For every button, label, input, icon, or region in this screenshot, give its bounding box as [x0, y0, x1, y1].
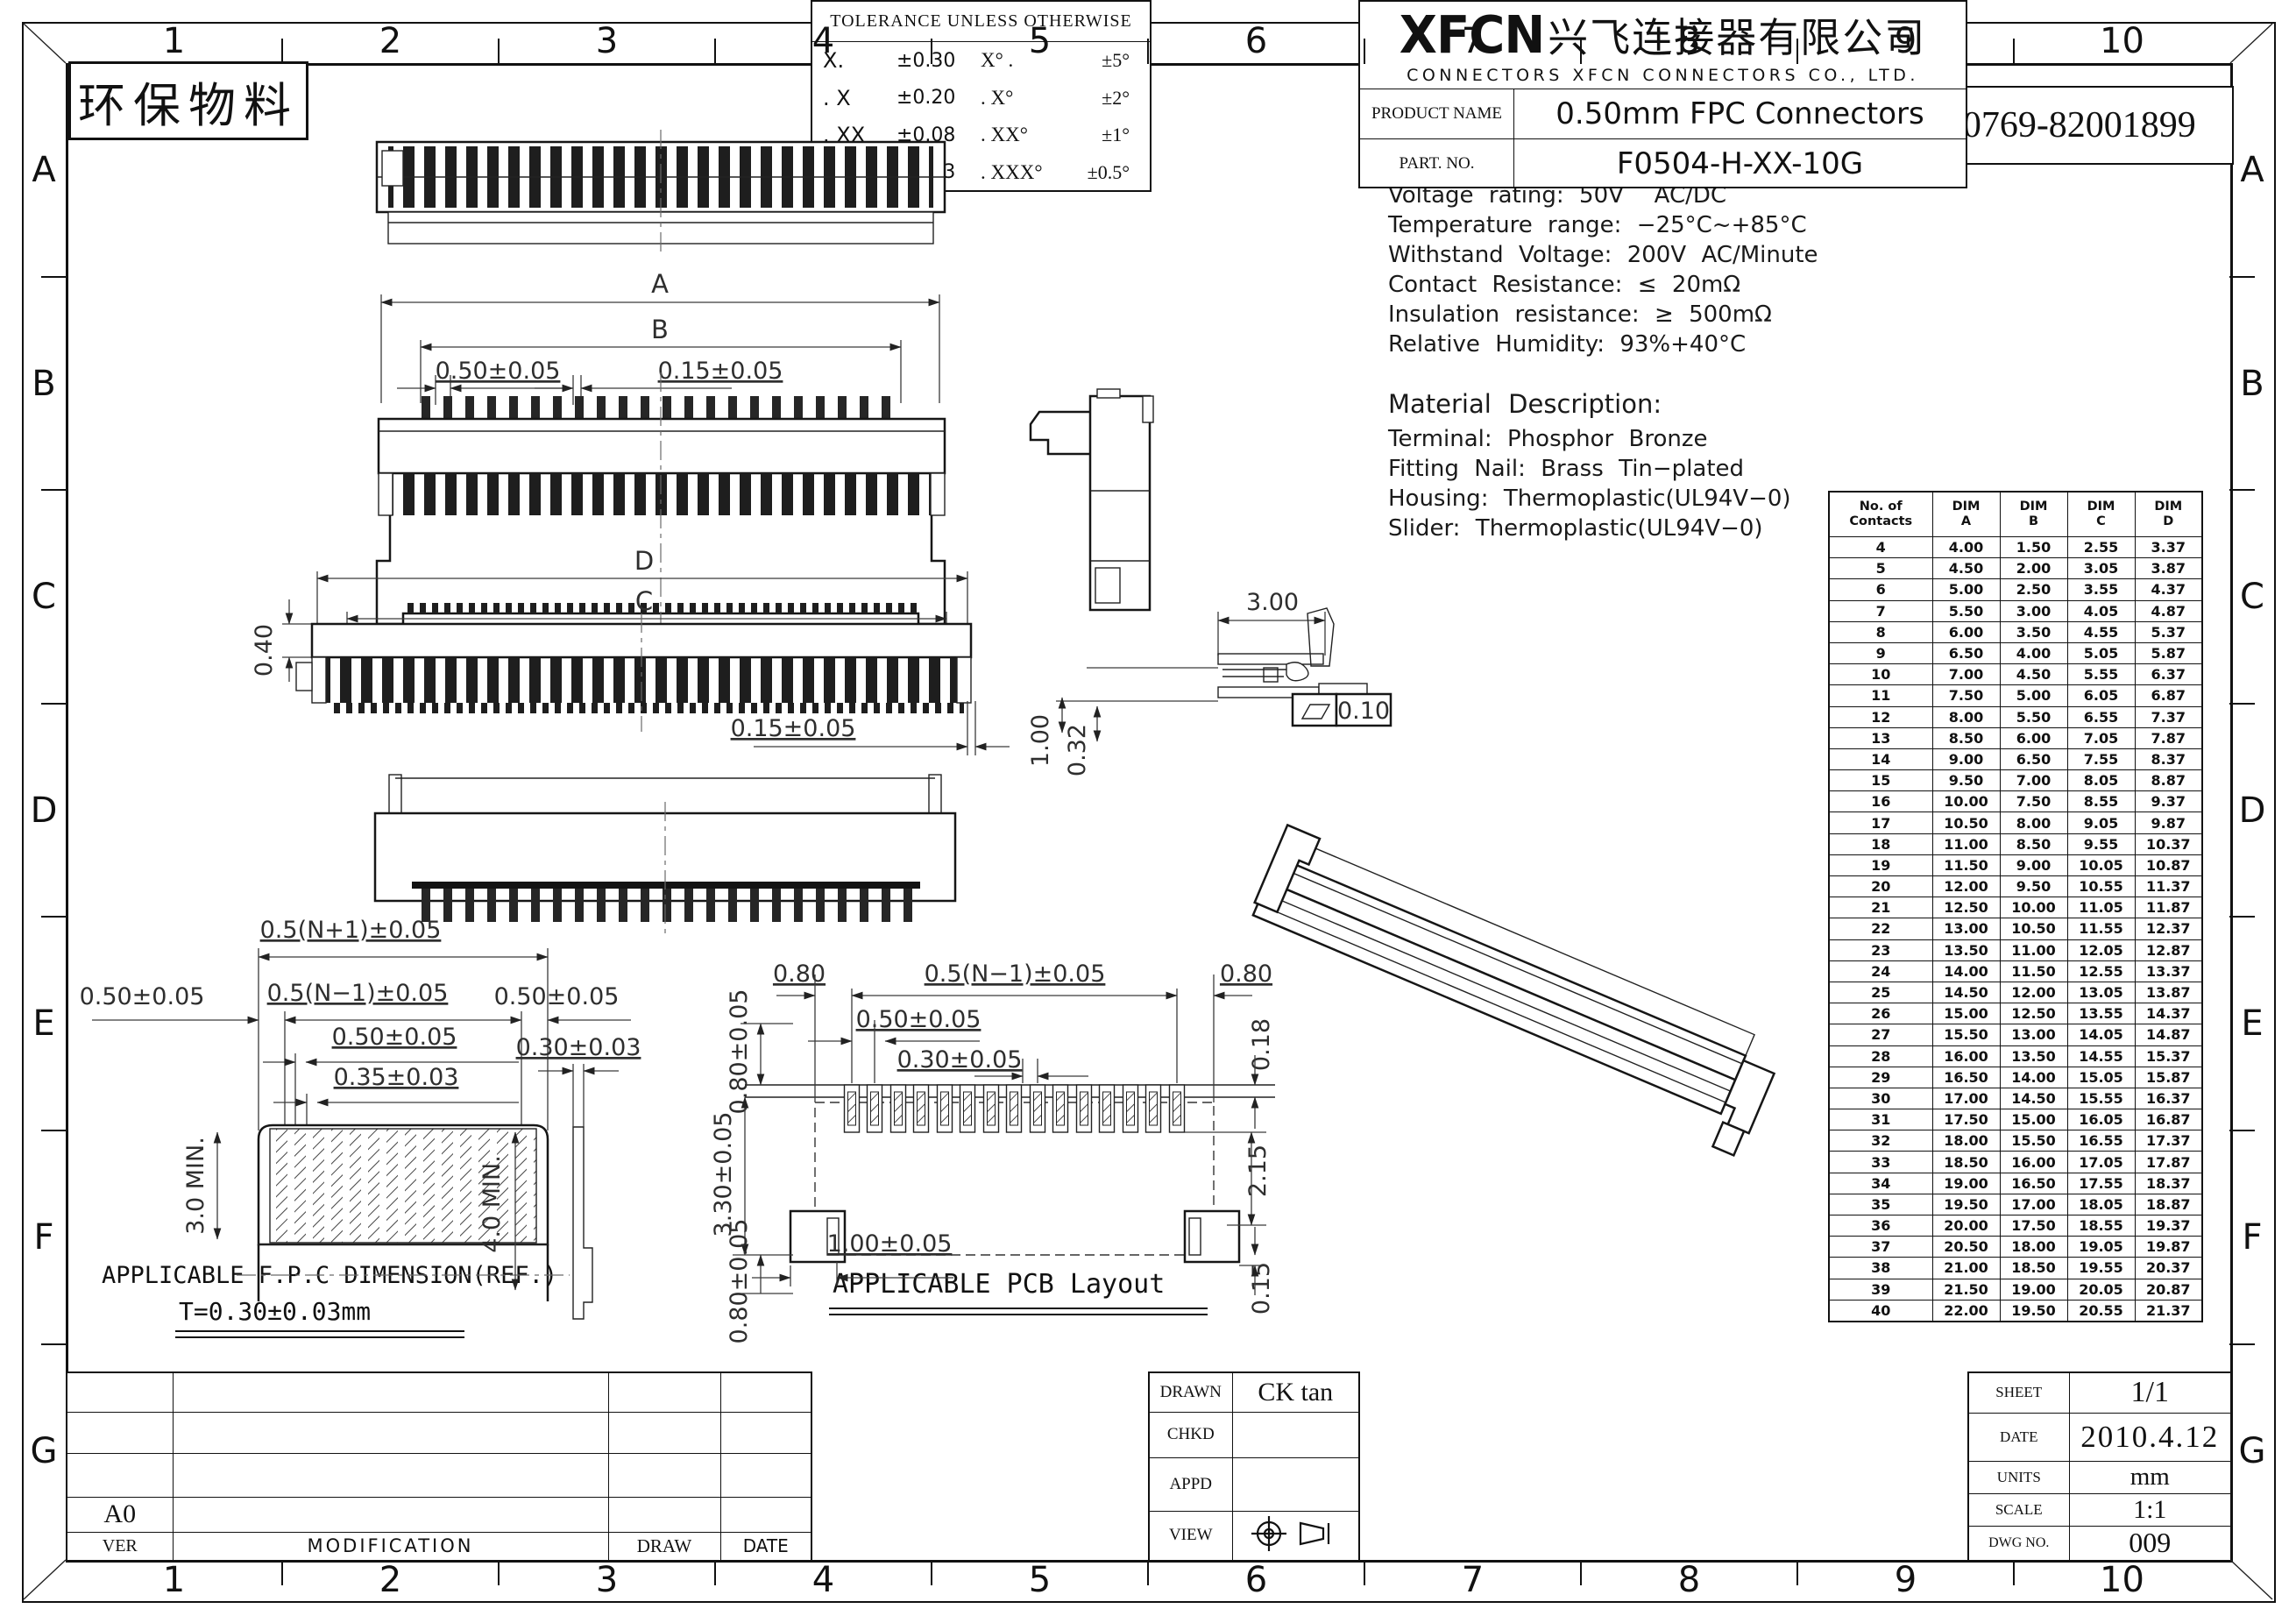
corner-marks — [24, 24, 2272, 1599]
dim-label-100: 1.00 — [1027, 714, 1054, 767]
dim-label-fpc-left: 0.50±0.05 — [80, 983, 205, 1010]
dim-label-300: 3.00 — [1246, 589, 1299, 616]
drawing-section-view: 3.00 1.00 0.32 0.10 — [1027, 589, 1391, 776]
drawing-front-view-2: D C 0.40 0.15±0.05 — [251, 546, 1010, 755]
dim-label-pcb-018: 0.18 — [1248, 1018, 1275, 1071]
dim-label-fpc-thick: 0.30±0.03 — [516, 1034, 641, 1061]
dim-label-pcb-edge-l: 0.80 — [773, 960, 826, 988]
dim-label-flatness: 0.10 — [1337, 698, 1390, 725]
flatness-symbol-frame — [1293, 694, 1336, 726]
dim-label-fpc-total: 0.5(N+1)±0.05 — [260, 917, 442, 944]
dim-label-032: 0.32 — [1064, 724, 1091, 776]
dim-label-pcb-height: 3.30±0.05 — [710, 1112, 737, 1237]
drawing-sheet: A B 0.50±0.05 0.15±0.05 — [0, 0, 2296, 1623]
dim-label-pitch: 0.50±0.05 — [436, 358, 561, 385]
dim-label-pcb-top: 0.80±0.05 — [726, 989, 753, 1115]
dim-label-B: B — [651, 315, 669, 344]
dim-label-040: 0.40 — [251, 624, 278, 677]
dim-label-fpc-span: 0.5(N−1)±0.05 — [267, 980, 449, 1007]
dim-label-pcb-015: 0.15 — [1248, 1262, 1275, 1315]
drawing-front-view: A B 0.50±0.05 0.15±0.05 — [377, 269, 945, 640]
dim-label-pcb-padw: 0.30±0.05 — [897, 1046, 1023, 1074]
dim-label-tab: 0.15±0.05 — [658, 358, 783, 385]
dim-label-tab-2: 0.15±0.05 — [731, 715, 856, 742]
dim-label-fpc-4min: 4.0 MIN. — [478, 1155, 506, 1253]
dim-label-fpc-3min: 3.0 MIN. — [182, 1137, 209, 1235]
drawing-bottom-view — [375, 775, 955, 938]
dim-label-pcb-anchor: 1.00±0.05 — [827, 1230, 953, 1258]
dim-label-fpc-pitch: 0.50±0.05 — [332, 1024, 457, 1051]
dim-label-pcb-span: 0.5(N−1)±0.05 — [925, 960, 1106, 988]
dim-label-pcb-bottom: 0.80±0.05 — [726, 1219, 753, 1344]
dim-label-pcb-edge-r: 0.80 — [1220, 960, 1272, 988]
drawing-side-profile — [1031, 389, 1153, 610]
drawing-canvas: A B 0.50±0.05 0.15±0.05 — [0, 0, 2296, 1623]
dim-label-fpc-right: 0.50±0.05 — [494, 983, 620, 1010]
drawing-fpc-dimension: 0.5(N+1)±0.05 0.50±0.05 0.5(N−1)±0.05 0.… — [80, 917, 641, 1319]
drawing-pcb-layout: 0.80 0.5(N−1)±0.05 0.80 0.50±0.05 0.30±0… — [710, 960, 1275, 1343]
drawing-top-view — [377, 130, 945, 256]
dim-label-fpc-finger: 0.35±0.03 — [334, 1064, 459, 1091]
dim-label-D: D — [634, 546, 654, 576]
drawing-isometric-view — [1237, 825, 1789, 1157]
dim-label-C: C — [635, 586, 653, 616]
dim-label-pcb-215: 2.15 — [1244, 1145, 1272, 1197]
dim-label-A: A — [651, 269, 669, 299]
